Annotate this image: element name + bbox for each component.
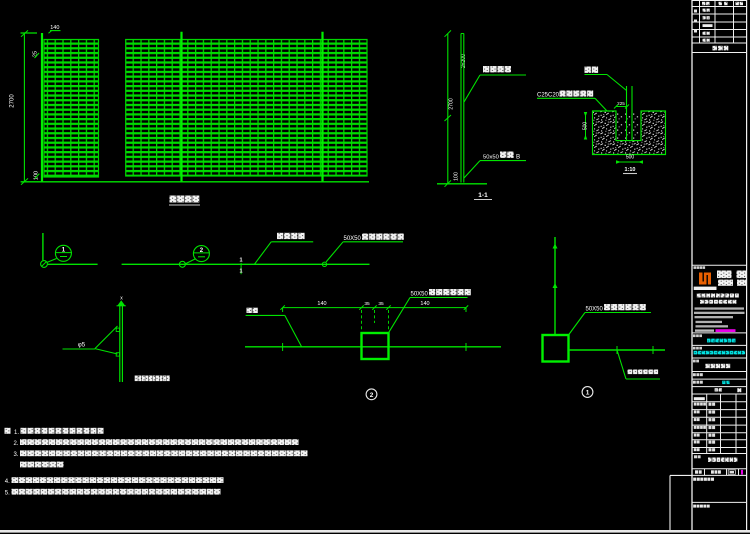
svg-text:100: 100 [454, 172, 460, 181]
svg-text:500: 500 [626, 155, 635, 161]
svg-text:50X50: 50X50 [411, 292, 429, 298]
svg-text:3.: 3. [14, 452, 19, 458]
svg-text:1: 1 [239, 269, 242, 275]
svg-text:5.: 5. [5, 491, 10, 497]
svg-text:100: 100 [34, 171, 40, 180]
svg-text:140: 140 [50, 25, 59, 31]
svg-text:50X50: 50X50 [344, 236, 362, 242]
svg-text:1-1: 1-1 [478, 192, 488, 199]
svg-text:50X50: 50X50 [586, 307, 604, 313]
svg-text:35: 35 [364, 301, 370, 307]
svg-text:225: 225 [617, 101, 625, 106]
svg-text:2: 2 [370, 392, 374, 399]
svg-text:140: 140 [317, 301, 326, 307]
svg-text:1.: 1. [14, 430, 19, 436]
svg-text:B: B [516, 154, 520, 161]
svg-text:1: 1 [586, 390, 590, 397]
svg-text:500: 500 [583, 122, 589, 131]
svg-text:50x50: 50x50 [483, 155, 499, 161]
svg-text:2700: 2700 [10, 94, 16, 108]
svg-text:C25C20: C25C20 [537, 92, 560, 98]
svg-text:1:10: 1:10 [624, 167, 635, 173]
svg-text:2.: 2. [14, 441, 19, 447]
svg-text:35: 35 [378, 301, 384, 307]
svg-text:4.: 4. [5, 479, 10, 485]
svg-text:1: 1 [239, 258, 242, 264]
svg-text:2700: 2700 [449, 98, 455, 110]
svg-text:φ5: φ5 [78, 343, 86, 349]
svg-text:140: 140 [420, 301, 429, 307]
